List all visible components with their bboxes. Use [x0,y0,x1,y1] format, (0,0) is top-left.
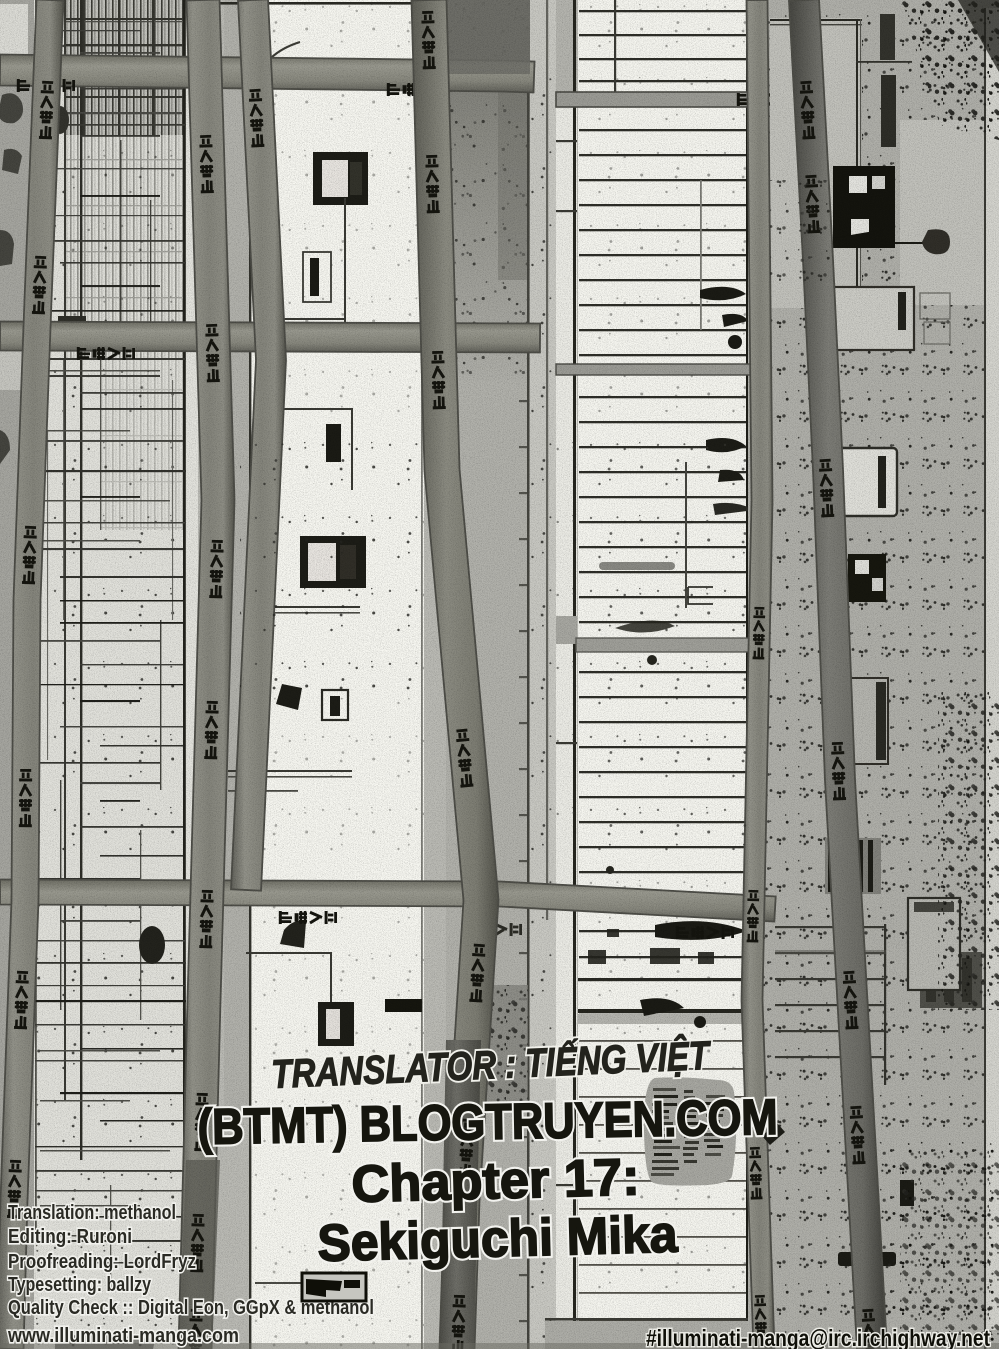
svg-text:Translation: methanol: Translation: methanol [8,1202,176,1224]
svg-text:(BTMT) BLOGTRUYEN.COM: (BTMT) BLOGTRUYEN.COM [197,1089,778,1155]
svg-text:Chapter 17:: Chapter 17: [351,1148,640,1214]
svg-text:Proofreading: LordFryz: Proofreading: LordFryz [8,1251,196,1273]
svg-text:www.illuminati-manga.com: www.illuminati-manga.com [7,1325,239,1347]
svg-text:#illuminati-manga@irc.irchighw: #illuminati-manga@irc.irchighway.net [646,1325,990,1349]
svg-text:Editing: Ruroni: Editing: Ruroni [8,1226,132,1248]
svg-text:Sekiguchi Mika: Sekiguchi Mika [317,1206,679,1273]
svg-text:Typesetting: ballzy: Typesetting: ballzy [8,1274,152,1296]
